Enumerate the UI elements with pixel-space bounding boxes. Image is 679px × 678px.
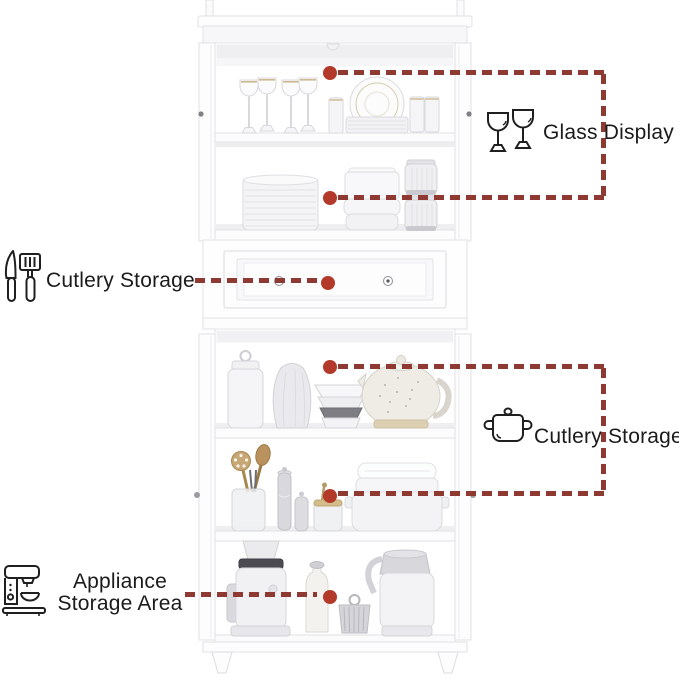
- drawer-knob-right: [384, 277, 393, 286]
- cutlery-drawer-label: Cutlery Storage: [46, 269, 195, 293]
- pot-icon: [483, 407, 533, 451]
- marker-dot: [323, 66, 337, 80]
- dash-line-bottom: [338, 195, 604, 200]
- marker-dot: [323, 489, 337, 503]
- wine-glasses-icon: [486, 109, 536, 157]
- glass-display-label: Glass Display: [543, 121, 674, 145]
- appliance-label-line2: Storage Area: [36, 593, 204, 615]
- marker-dot: [321, 276, 335, 290]
- annotated-product-image: Glass Display Cutlery Storage: [0, 0, 679, 678]
- appliance-area-label: Appliance Storage Area: [36, 571, 204, 615]
- dash-line-bottom: [338, 491, 604, 496]
- dash-line-top: [338, 70, 604, 75]
- cutlery-icon: [4, 250, 44, 304]
- marker-dot: [323, 590, 337, 604]
- dash-line: [195, 278, 319, 283]
- marker-dot: [323, 360, 337, 374]
- drawer: [203, 240, 467, 329]
- dash-line-top: [338, 364, 604, 369]
- upper-door-left: [198, 43, 215, 241]
- marker-dot: [323, 191, 337, 205]
- cutlery-cabinet-label: Cutlery Storage: [534, 425, 679, 449]
- hutch-crown: [198, 0, 472, 44]
- base-legs: [203, 642, 467, 673]
- appliance-label-line1: Appliance: [36, 571, 204, 593]
- dash-line: [185, 592, 317, 597]
- lower-door-right: [455, 334, 476, 640]
